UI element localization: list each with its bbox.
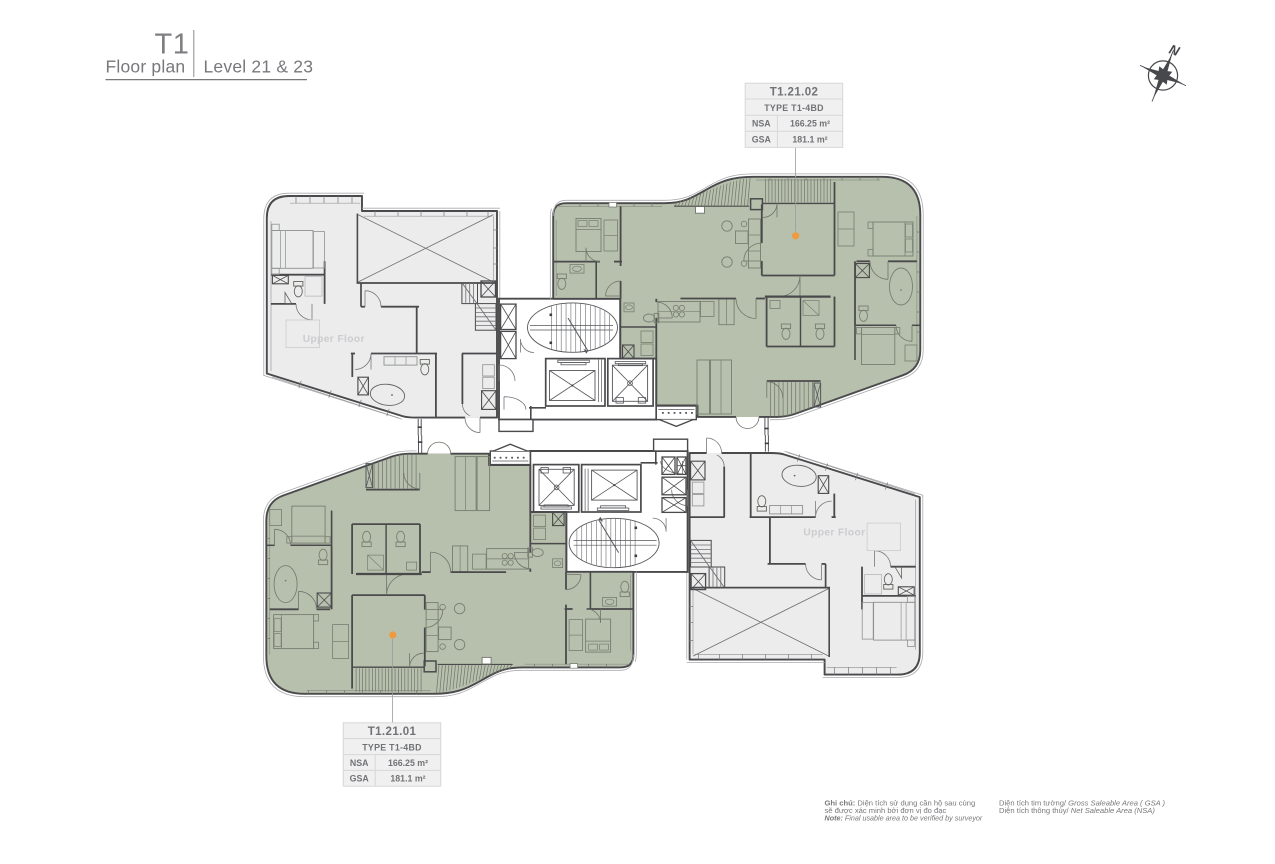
svg-text:Diện tích thông thủy/ Net Sale: Diện tích thông thủy/ Net Saleable Area … (999, 806, 1155, 815)
svg-text:N: N (1167, 42, 1182, 60)
svg-text:Note: Final usable area to be: Note: Final usable area to be verified b… (825, 814, 983, 823)
svg-text:Upper Floor: Upper Floor (803, 527, 865, 538)
svg-text:Level 21 & 23: Level 21 & 23 (204, 57, 314, 77)
svg-text:TYPE T1-4BD: TYPE T1-4BD (362, 743, 422, 753)
svg-text:NSA: NSA (752, 119, 771, 129)
svg-text:166.25 m²: 166.25 m² (790, 119, 830, 129)
svg-text:181.1 m²: 181.1 m² (390, 774, 425, 784)
svg-text:NSA: NSA (350, 758, 369, 768)
svg-text:Upper Floor: Upper Floor (303, 334, 365, 345)
svg-text:GSA: GSA (350, 774, 370, 784)
svg-text:Floor plan: Floor plan (106, 57, 186, 77)
svg-text:TYPE T1-4BD: TYPE T1-4BD (764, 103, 824, 113)
svg-text:166.25 m²: 166.25 m² (388, 758, 428, 768)
svg-text:T1.21.02: T1.21.02 (770, 87, 819, 99)
svg-text:181.1 m²: 181.1 m² (792, 135, 827, 145)
svg-text:GSA: GSA (752, 135, 772, 145)
svg-text:T1.21.01: T1.21.01 (368, 726, 417, 738)
